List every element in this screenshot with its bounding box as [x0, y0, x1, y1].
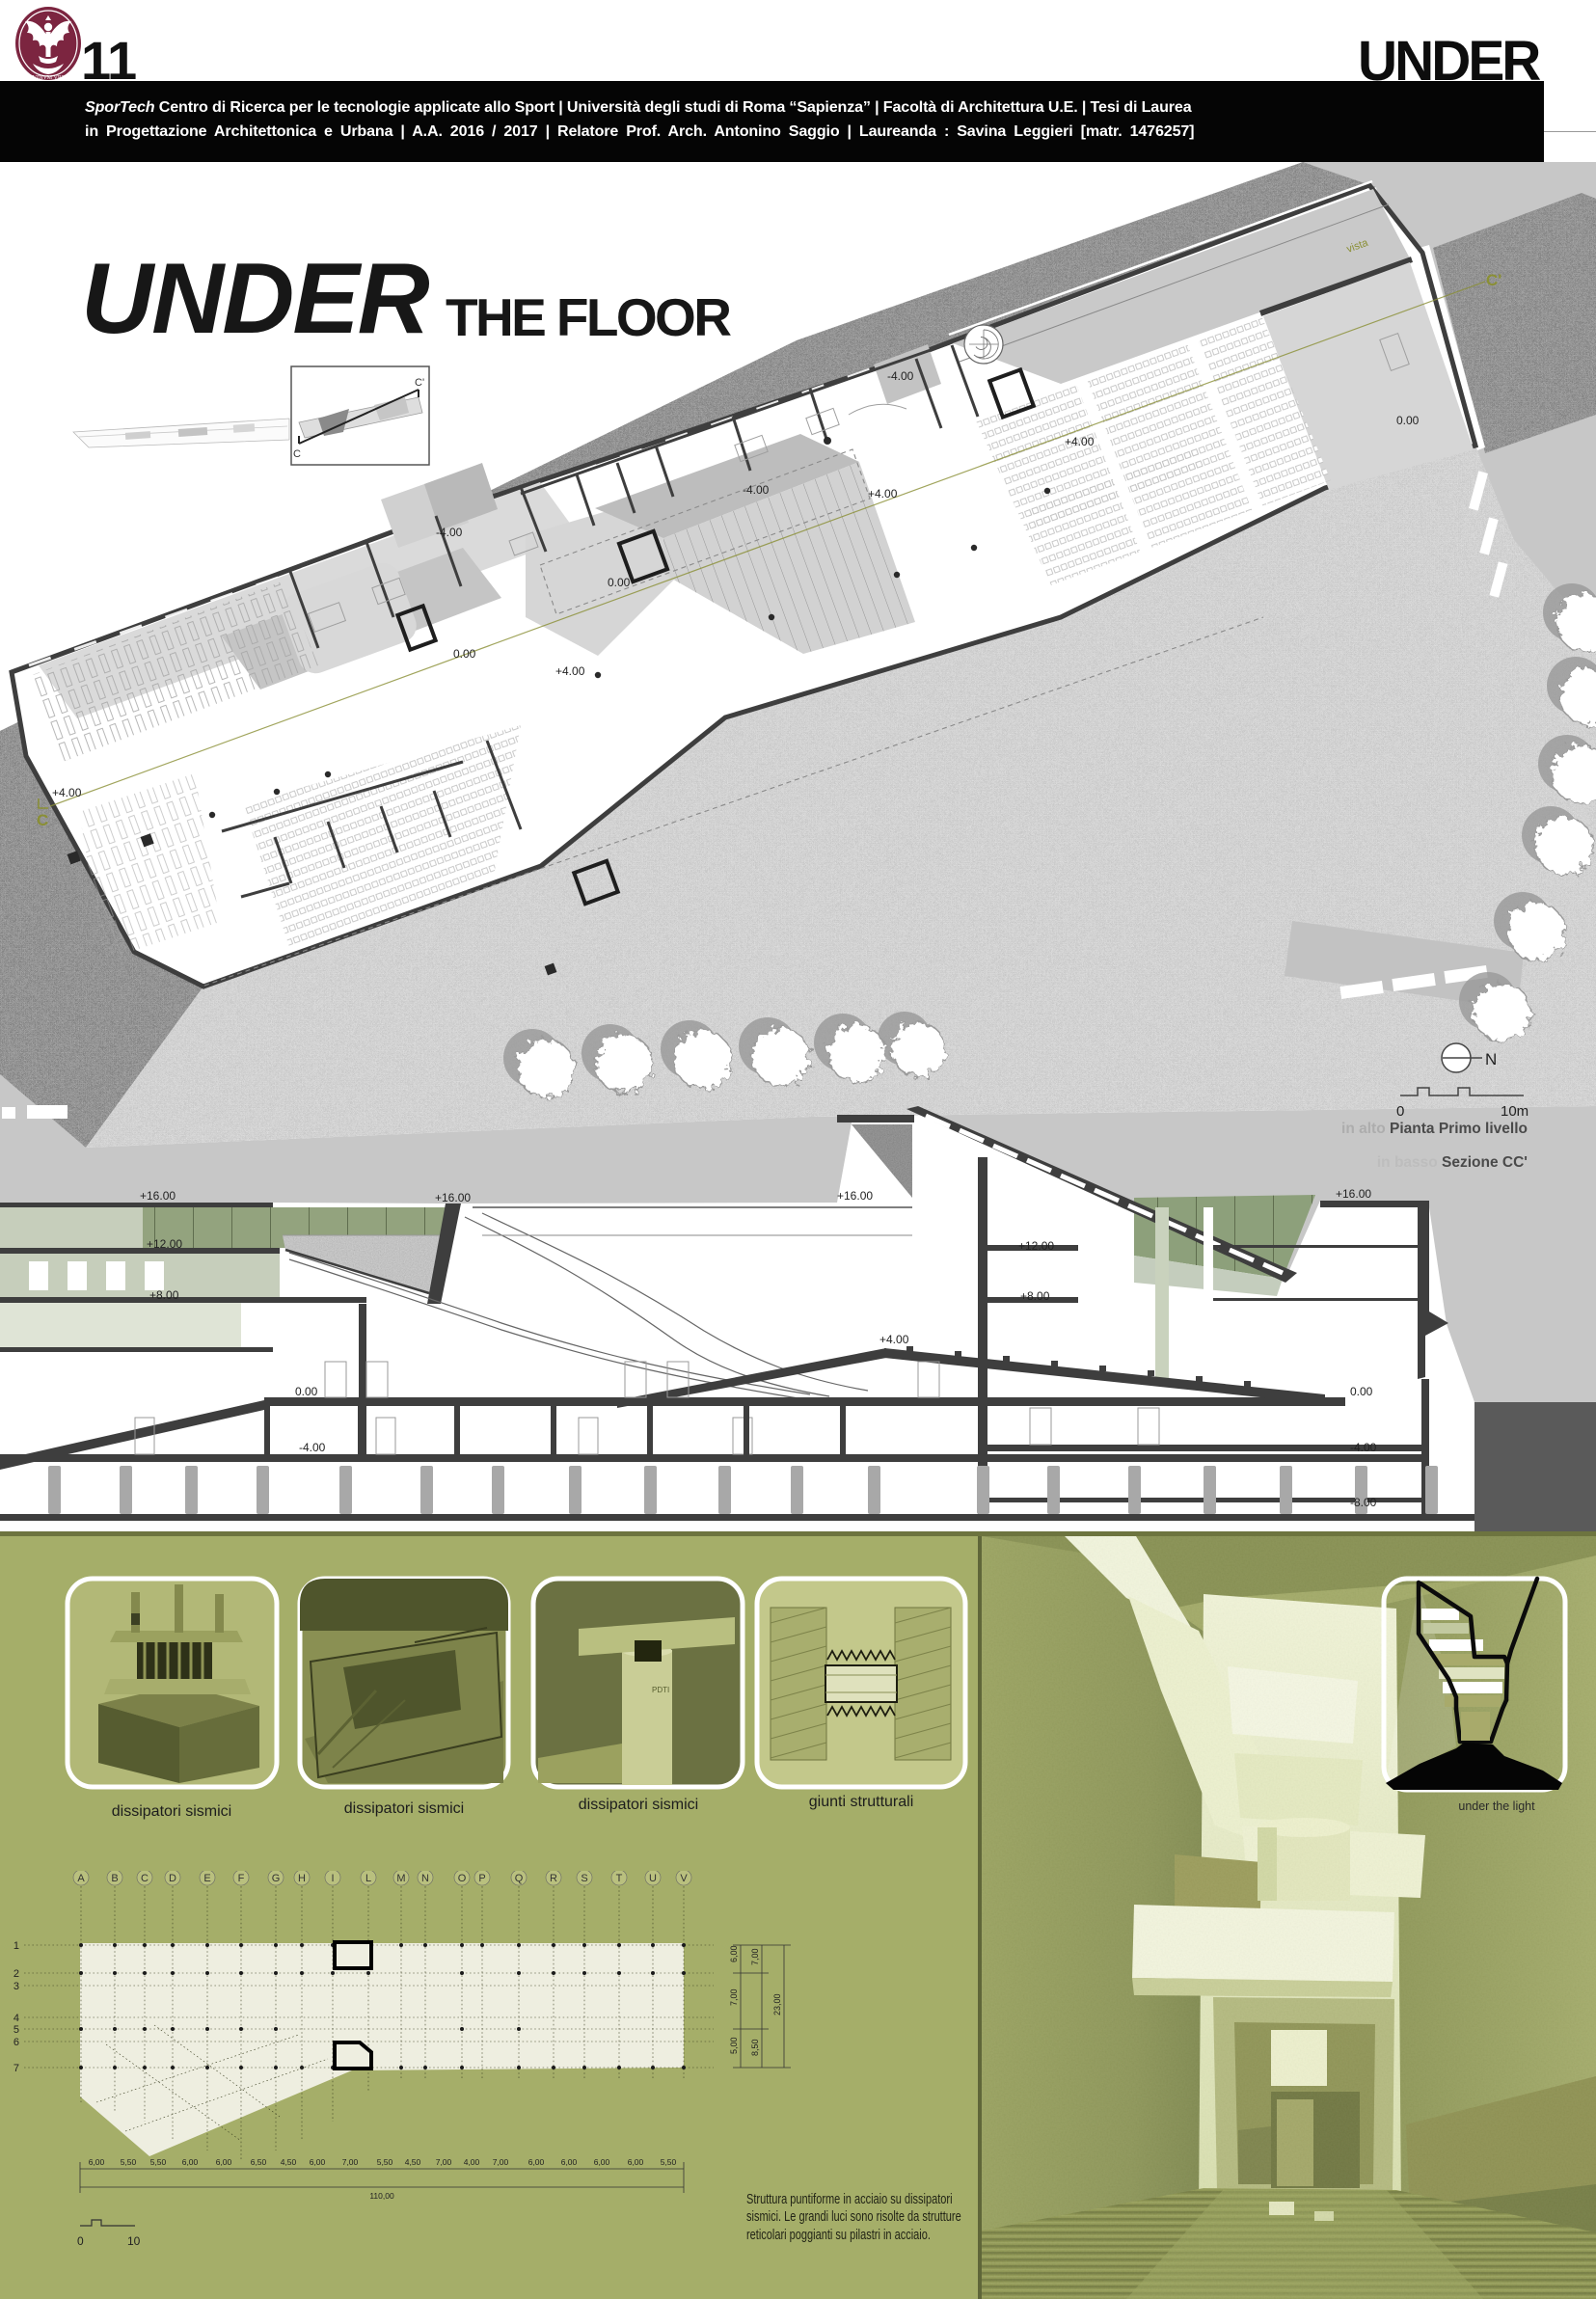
svg-text:-4.00: -4.00 [299, 1441, 326, 1454]
svg-text:7,00: 7,00 [436, 2157, 452, 2167]
svg-text:-4.00: -4.00 [436, 526, 463, 539]
svg-text:+4.00: +4.00 [879, 1333, 909, 1346]
svg-text:0.00: 0.00 [1396, 414, 1420, 427]
svg-text:7,00: 7,00 [342, 2157, 359, 2167]
svg-text:-4.00: -4.00 [1350, 1441, 1377, 1454]
svg-text:F: F [238, 1873, 245, 1884]
svg-text:6,00: 6,00 [528, 2157, 545, 2167]
svg-text:2: 2 [14, 1968, 19, 1980]
svg-text:in basso Sezione CC': in basso Sezione CC' [1377, 1154, 1528, 1171]
svg-text:C': C' [415, 377, 424, 389]
svg-text:+4.00: +4.00 [868, 487, 898, 500]
svg-text:10m: 10m [1501, 1103, 1528, 1120]
svg-text:M: M [396, 1873, 405, 1884]
svg-text:6,00: 6,00 [89, 2157, 105, 2167]
svg-text:+16.00: +16.00 [140, 1189, 176, 1203]
svg-text:8,50: 8,50 [750, 2039, 760, 2056]
svg-text:+12.00: +12.00 [1018, 1239, 1054, 1253]
svg-text:-4.00: -4.00 [887, 369, 914, 383]
svg-text:L: L [365, 1873, 371, 1884]
svg-text:6,00: 6,00 [594, 2157, 610, 2167]
svg-text:dissipatori sismici: dissipatori sismici [112, 1803, 231, 1820]
svg-text:4,50: 4,50 [281, 2157, 297, 2167]
svg-text:giunti strutturali: giunti strutturali [809, 1794, 914, 1810]
svg-text:E: E [203, 1873, 210, 1884]
svg-text:T: T [616, 1873, 623, 1884]
svg-text:1: 1 [14, 1940, 19, 1952]
svg-text:0.00: 0.00 [295, 1385, 318, 1398]
svg-text:0.00: 0.00 [453, 647, 476, 661]
svg-text:10: 10 [127, 2234, 141, 2248]
svg-text:7,00: 7,00 [729, 1988, 739, 2006]
svg-text:+4.00: +4.00 [52, 786, 82, 799]
svg-text:PDTI: PDTI [652, 1686, 669, 1694]
svg-text:0.00: 0.00 [608, 576, 631, 589]
svg-text:H: H [298, 1873, 306, 1884]
svg-text:7,00: 7,00 [750, 1948, 760, 1965]
svg-text:6,00: 6,00 [561, 2157, 578, 2167]
svg-text:N: N [1485, 1050, 1497, 1068]
svg-text:dissipatori sismici: dissipatori sismici [344, 1800, 464, 1817]
svg-text:U: U [649, 1873, 657, 1884]
svg-text:4,00: 4,00 [464, 2157, 480, 2167]
svg-text:4: 4 [14, 2013, 19, 2024]
svg-text:in alto Pianta Primo livello: in alto Pianta Primo livello [1341, 1121, 1528, 1137]
svg-text:B: B [111, 1873, 118, 1884]
svg-text:6: 6 [14, 2037, 19, 2048]
svg-text:6,00: 6,00 [729, 1945, 739, 1962]
svg-text:5,50: 5,50 [150, 2157, 167, 2167]
svg-text:R: R [550, 1873, 557, 1884]
svg-text:0: 0 [1396, 1103, 1404, 1120]
svg-text:+16.00: +16.00 [837, 1189, 873, 1203]
svg-text:G: G [272, 1873, 281, 1884]
svg-text:5,00: 5,00 [729, 2037, 739, 2054]
svg-text:6,00: 6,00 [216, 2157, 232, 2167]
svg-text:+16.00: +16.00 [435, 1191, 471, 1204]
svg-text:+4.00: +4.00 [1065, 435, 1095, 448]
svg-text:6,00: 6,00 [182, 2157, 199, 2167]
svg-text:+16.00: +16.00 [1336, 1187, 1371, 1201]
svg-text:7,00: 7,00 [493, 2157, 509, 2167]
svg-text:N: N [421, 1873, 429, 1884]
svg-text:6,50: 6,50 [251, 2157, 267, 2167]
svg-text:P: P [478, 1873, 485, 1884]
svg-text:S: S [581, 1873, 587, 1884]
svg-text:+4.00: +4.00 [555, 664, 585, 678]
svg-text:C: C [141, 1873, 149, 1884]
svg-text:110,00: 110,00 [369, 2191, 394, 2201]
svg-text:C: C [293, 448, 301, 460]
svg-text:I: I [331, 1873, 334, 1884]
svg-text:0.00: 0.00 [1350, 1385, 1373, 1398]
svg-text:0: 0 [77, 2234, 84, 2248]
svg-text:4,50: 4,50 [405, 2157, 421, 2167]
svg-text:+8.00: +8.00 [149, 1288, 179, 1302]
svg-text:6,00: 6,00 [310, 2157, 326, 2167]
svg-text:D: D [169, 1873, 176, 1884]
svg-text:6,00: 6,00 [628, 2157, 644, 2167]
svg-text:+12.00: +12.00 [147, 1237, 182, 1251]
svg-text:Q: Q [515, 1873, 524, 1884]
svg-text:+8.00: +8.00 [1020, 1289, 1050, 1303]
svg-text:-4.00: -4.00 [743, 483, 770, 497]
svg-text:5,50: 5,50 [121, 2157, 137, 2167]
svg-text:5: 5 [14, 2024, 19, 2036]
svg-text:A: A [77, 1873, 85, 1884]
svg-text:-8.00: -8.00 [1350, 1496, 1377, 1509]
svg-text:V: V [680, 1873, 688, 1884]
svg-text:7: 7 [14, 2063, 19, 2074]
svg-text:under the light: under the light [1458, 1799, 1535, 1813]
svg-text:dissipatori sismici: dissipatori sismici [579, 1797, 698, 1813]
svg-text:5,50: 5,50 [377, 2157, 393, 2167]
svg-text:C: C [37, 811, 48, 829]
svg-text:3: 3 [14, 1981, 19, 1992]
svg-text:5,50: 5,50 [661, 2157, 677, 2167]
svg-text:O: O [458, 1873, 467, 1884]
svg-text:C': C' [1486, 271, 1501, 289]
svg-text:23,00: 23,00 [772, 1993, 782, 2015]
